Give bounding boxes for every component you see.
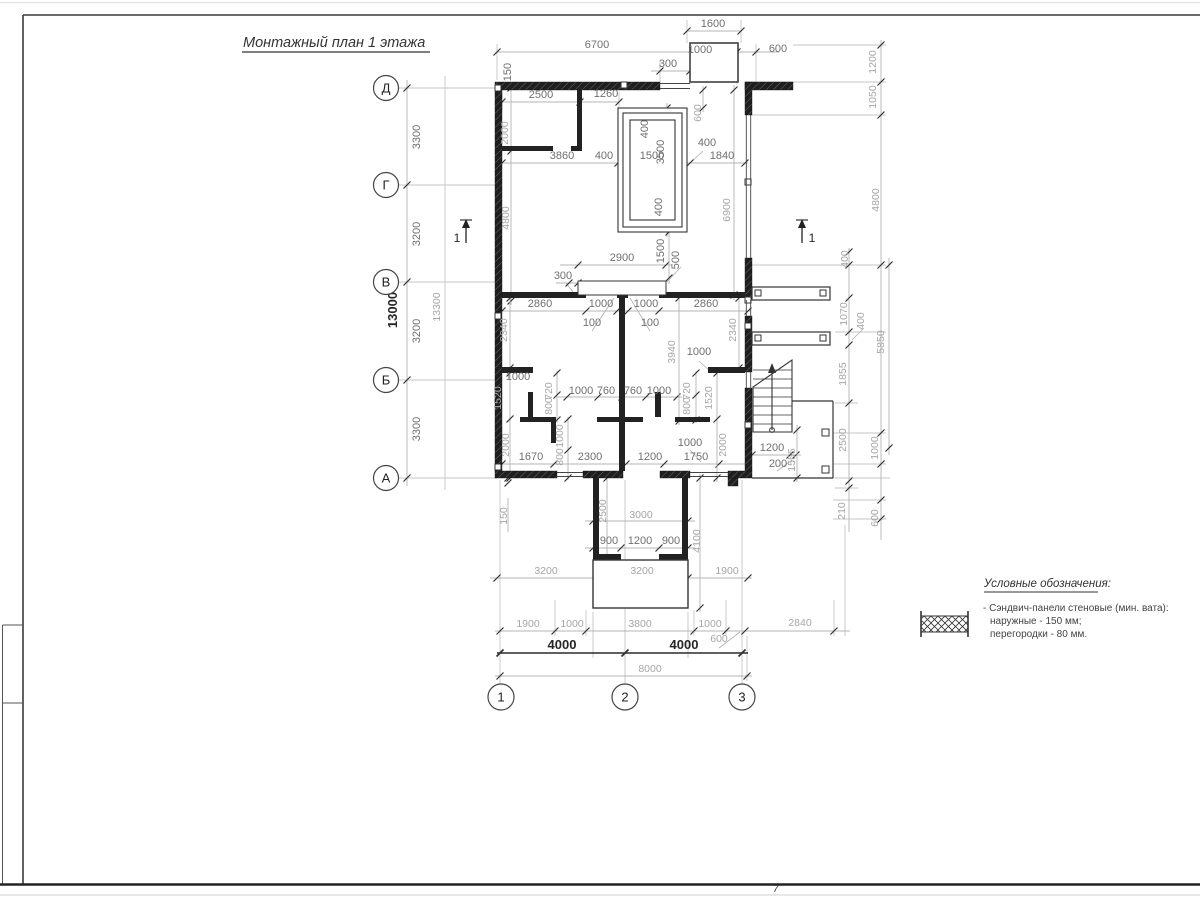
dimension-label: 2340 (498, 318, 510, 342)
dimension-label: 1000 (698, 618, 722, 630)
dimension-label: 1555 (786, 448, 798, 472)
dimension-label: 600 (869, 509, 881, 527)
dimension-label: 1200 (867, 50, 879, 74)
dimension-label: 3860 (550, 150, 574, 162)
dimension-label: 4100 (691, 529, 703, 553)
dimension-label: 400 (595, 150, 613, 162)
dimension-label: 5850 (875, 330, 887, 354)
dimension-label: 3000 (629, 509, 653, 521)
dimension-label: 300 (554, 270, 572, 282)
sandwich-panel-symbol-icon (921, 611, 968, 637)
sheet-number: 7 (773, 884, 779, 895)
dimension-label: 150 (502, 63, 514, 81)
dimension-label: 400 (698, 137, 716, 149)
dimension-label: 300 (659, 58, 677, 70)
dimension-label: 6700 (585, 39, 609, 51)
dimension-label: 1000 (634, 298, 658, 310)
dimension-label: 1670 (519, 451, 543, 463)
dimension-label: 2840 (788, 617, 812, 629)
dimension-label: 100 (641, 317, 659, 329)
dimension-label: 1600 (701, 18, 725, 30)
dimension-label: 1050 (867, 85, 879, 109)
dimension-label: 400 (839, 250, 851, 268)
axis-marker-label: 2 (621, 690, 628, 705)
axis-marker-label: 1 (497, 690, 504, 705)
dimension-label: 800 (554, 448, 566, 466)
dimension-label: 6900 (721, 198, 733, 222)
dimension-label: 2500 (529, 89, 553, 101)
dimension-label: 1070 (838, 302, 850, 326)
dimension-label: 400 (639, 120, 651, 138)
legend: Условные обозначения: - Сэндвич-панели с… (921, 578, 1169, 640)
dimension-label: 1000 (687, 346, 711, 358)
dimension-label: 760 (624, 385, 642, 397)
dimension-label: 1000 (869, 436, 881, 460)
dimension-label: 1520 (492, 386, 504, 410)
dimension-label: 8000 (638, 663, 662, 675)
dimension-label: 200 (769, 458, 787, 470)
axis-marker-label: Г (382, 178, 389, 193)
dimension-label: 3300 (411, 417, 423, 441)
dimension-label: 1855 (837, 362, 849, 386)
axis-marker-label: Д (382, 81, 391, 96)
dimension-label: 500 (670, 251, 682, 269)
dimension-label: 900 (600, 535, 618, 547)
dimension-label: 13300 (431, 292, 443, 321)
axis-marker-label: А (382, 471, 391, 486)
dimension-label: 2000 (717, 433, 729, 457)
dimension-label: 3200 (630, 565, 654, 577)
dimension-label: 2000 (499, 121, 511, 145)
dimension-label: 900 (662, 535, 680, 547)
dimension-label: 1900 (715, 565, 739, 577)
dimension-label: 1900 (516, 618, 540, 630)
dimension-label: 1200 (628, 535, 652, 547)
dimension-label: 210 (836, 502, 848, 520)
dimension-label: 4800 (500, 206, 512, 230)
dimension-label: 2900 (610, 252, 634, 264)
dimension-label: 1000 (569, 385, 593, 397)
legend-item-line: перегородки - 80 мм. (990, 629, 1087, 640)
dimension-label: 720 (543, 382, 555, 400)
axis-marker-label: 3 (738, 690, 745, 705)
dimension-label: 150 (498, 507, 510, 525)
drawing-sheet: Монтажный план 1 этажа 16006700100060030… (0, 0, 1200, 900)
dimension-label: 600 (692, 104, 704, 122)
drawing-title: Монтажный план 1 этажа (242, 35, 430, 52)
page-title: Монтажный план 1 этажа (243, 35, 425, 51)
dimension-label: 4800 (870, 188, 882, 212)
dimension-label: 2340 (727, 318, 739, 342)
dimension-label: 2860 (694, 298, 718, 310)
dimension-label: 760 (597, 385, 615, 397)
dimension-label: 3200 (411, 319, 423, 343)
axis-marker-label: В (382, 275, 391, 290)
dimension-label: 1750 (684, 451, 708, 463)
dimension-label: 400 (653, 198, 665, 216)
dimension-label: 600 (769, 43, 787, 55)
sheet-frame (0, 3, 1200, 896)
dimension-label: 1000 (589, 298, 613, 310)
dimension-label: 3940 (666, 340, 678, 364)
dimension-label: 100 (583, 317, 601, 329)
dimension-label: 3300 (411, 125, 423, 149)
dimension-label: 4000 (548, 637, 577, 652)
dimension-label: 1000 (560, 618, 584, 630)
dimension-label: 400 (855, 312, 867, 330)
fixtures (495, 43, 833, 608)
dimension-label: 1000 (506, 371, 530, 383)
floor-plan-canvas: Монтажный план 1 этажа 16006700100060030… (0, 0, 1200, 900)
dimension-label: 1500 (640, 150, 664, 162)
section-mark-label: 1 (454, 231, 461, 245)
dimension-label: 3200 (534, 565, 558, 577)
dimension-label: 2000 (500, 433, 512, 457)
dimension-label: 720 (681, 382, 693, 400)
legend-heading: Условные обозначения: (983, 578, 1111, 590)
dimension-label: 1000 (554, 424, 566, 448)
dimension-label: 4000 (670, 637, 699, 652)
section-mark-label: 1 (809, 231, 816, 245)
dimension-label: 2860 (528, 298, 552, 310)
dimension-label: 1260 (594, 88, 618, 100)
dimension-label: 1000 (647, 385, 671, 397)
dimension-label: 1200 (760, 442, 784, 454)
dimension-label: 13000 (385, 292, 400, 328)
dimension-label: 3800 (628, 618, 652, 630)
dimension-label: 1200 (638, 451, 662, 463)
dimension-label: 1840 (710, 150, 734, 162)
dimension-label: 800 (543, 397, 555, 415)
dimension-label: 2500 (837, 428, 849, 452)
dimension-label: 1000 (678, 437, 702, 449)
dimension-label: 600 (710, 633, 728, 645)
dimension-label: 3200 (411, 222, 423, 246)
dimension-label: 1000 (688, 44, 712, 56)
legend-item-line: наружные - 150 мм; (990, 616, 1081, 627)
legend-item-line: - Сэндвич-панели стеновые (мин. вата): (983, 603, 1169, 614)
dimension-label: 1520 (703, 386, 715, 410)
dimension-label: 800 (681, 397, 693, 415)
dimension-label: 1500 (655, 239, 667, 263)
axis-marker-label: Б (382, 373, 391, 388)
dimension-label: 2300 (578, 451, 602, 463)
dimension-label: 2500 (597, 499, 609, 523)
